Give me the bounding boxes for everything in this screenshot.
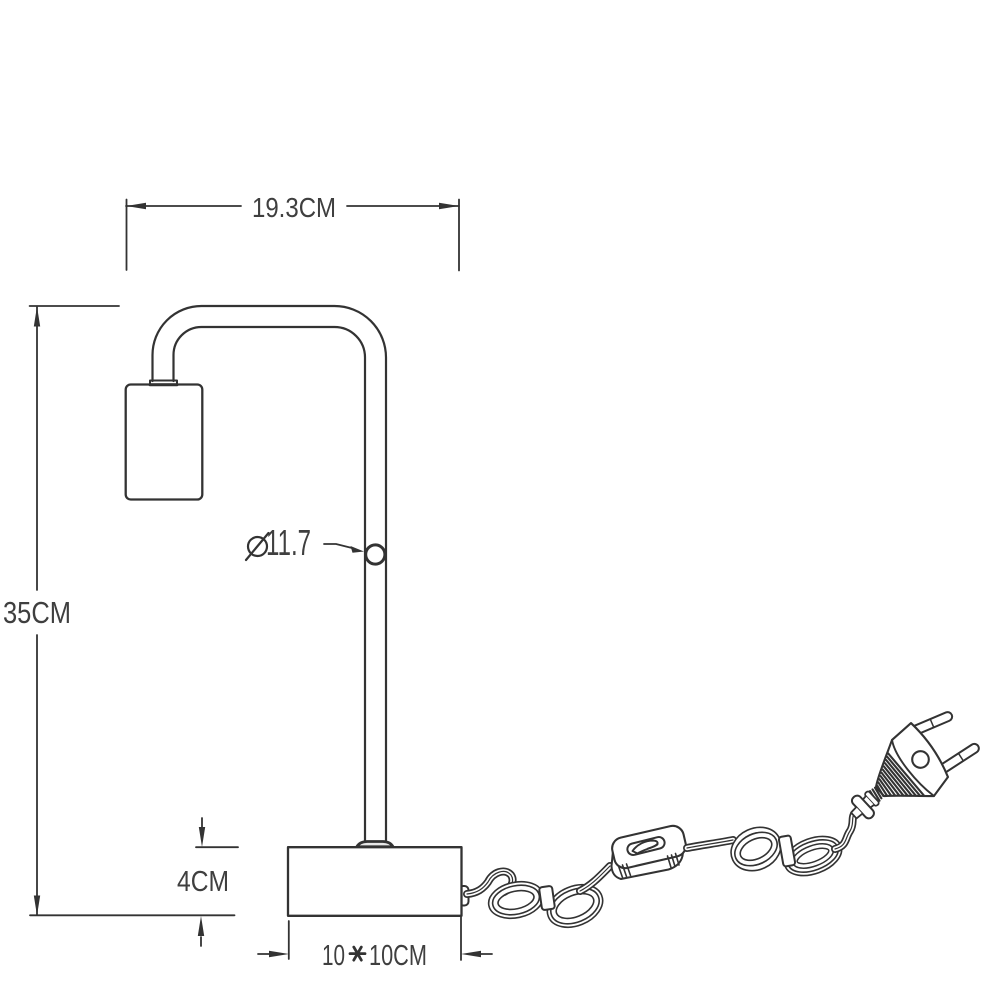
- svg-text:35CM: 35CM: [3, 595, 71, 630]
- svg-text:10: 10: [322, 940, 345, 972]
- svg-text:11.7: 11.7: [266, 522, 311, 563]
- svg-text:19.3CM: 19.3CM: [252, 192, 336, 223]
- svg-text:10CM: 10CM: [369, 940, 427, 972]
- svg-text:4CM: 4CM: [177, 866, 229, 898]
